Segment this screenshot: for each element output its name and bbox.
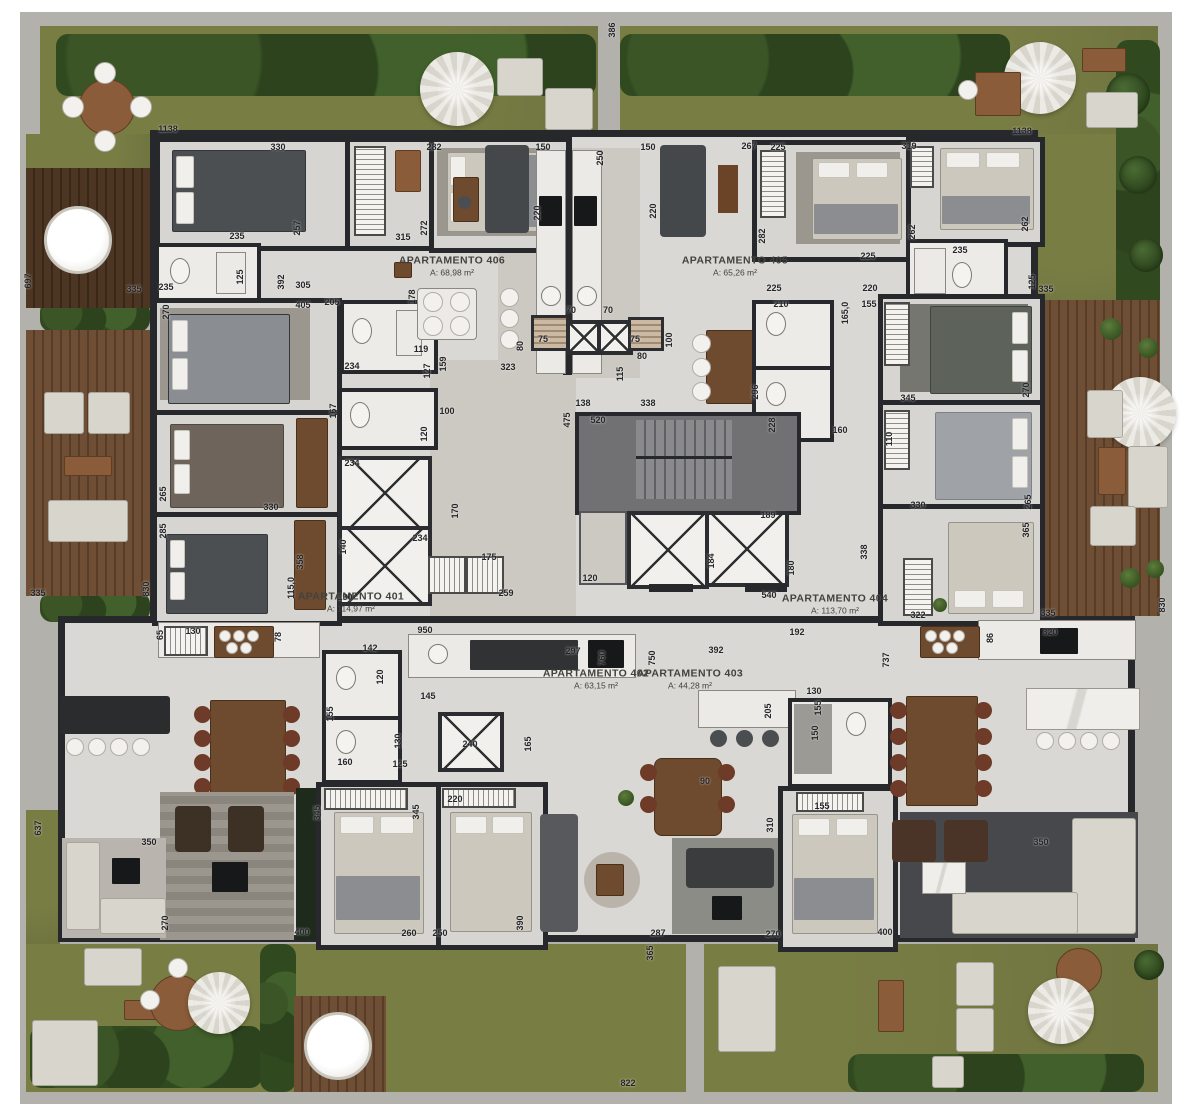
dimension-label: 282 <box>426 142 441 152</box>
dimension-label: 225 <box>860 251 875 261</box>
dimension-label: 175 <box>481 552 496 562</box>
dimension-label: 475 <box>562 412 572 427</box>
dimension-label: 345 <box>900 393 915 403</box>
dimension-label: 338 <box>859 544 869 559</box>
dimension-label: 365 <box>645 945 655 960</box>
dimension-label: 338 <box>640 398 655 408</box>
dimension-label: 1138 <box>1012 126 1032 136</box>
dimension-label: 165,0 <box>840 302 850 325</box>
dimension-label: 78 <box>273 632 283 642</box>
dimension-label: 110 <box>884 432 894 447</box>
dimension-label: 830 <box>1157 597 1167 612</box>
apartment-area: A: 113,70 m² <box>782 606 888 616</box>
dimension-label: 130 <box>806 686 821 696</box>
apartment-label: APARTAMENTO 405A: 65,26 m² <box>682 255 788 278</box>
dimension-label: 145 <box>420 691 435 701</box>
dimension-label: 240 <box>462 739 477 749</box>
dimension-label: 262 <box>1020 216 1030 231</box>
dimension-label: 189 <box>760 510 775 520</box>
apartment-name: APARTAMENTO 404 <box>782 593 888 605</box>
dimension-label: 270 <box>161 304 171 319</box>
dimension-label: 155 <box>325 706 335 721</box>
dimension-label: 350 <box>1033 837 1048 847</box>
dimension-label: 160 <box>337 757 352 767</box>
dimension-label: 65 <box>155 630 165 640</box>
dimension-label: 184 <box>706 553 716 568</box>
dimension-label: 262 <box>907 224 917 239</box>
dimension-label: 335 <box>1038 284 1053 294</box>
dimension-label: 285 <box>158 523 168 538</box>
apartment-area: A: 114,97 m² <box>298 604 404 614</box>
dimension-label: 125 <box>1027 274 1037 289</box>
dimension-label: 125 <box>392 759 407 769</box>
dimension-label: 120 <box>375 669 385 684</box>
apartment-area: A: 63,15 m² <box>543 681 649 691</box>
dimension-label: 358 <box>295 554 305 569</box>
dimension-label: 142 <box>362 643 377 653</box>
dimension-label: 170 <box>450 503 460 518</box>
dimension-label: 272 <box>419 220 429 235</box>
dimension-label: 822 <box>620 1078 635 1088</box>
dimension-label: 210 <box>773 299 788 309</box>
dimension-label: 225 <box>770 142 785 152</box>
dimension-label: 119 <box>414 344 429 354</box>
apartment-area: A: 44,28 m² <box>637 681 743 691</box>
dimension-label: 150 <box>810 725 820 740</box>
apartment-name: APARTAMENTO 402 <box>543 668 649 680</box>
dimension-label: 330 <box>910 500 925 510</box>
dimension-label: 520 <box>590 415 605 425</box>
dimension-label: 386 <box>607 22 617 37</box>
dimension-label: 234 <box>344 361 359 371</box>
dimension-label: 75 <box>630 334 640 344</box>
dimension-label: 178 <box>407 289 417 304</box>
dimension-label: 75 <box>538 334 548 344</box>
dimension-label: 125 <box>235 269 245 284</box>
dimension-label: 150 <box>640 142 655 152</box>
dimension-label: 159 <box>438 356 448 371</box>
dimension-label: 267 <box>741 141 756 151</box>
dimension-label: 1138 <box>158 124 178 134</box>
dimension-label: 130 <box>393 733 403 748</box>
apartment-name: APARTAMENTO 405 <box>682 255 788 267</box>
apartment-label: APARTAMENTO 403A: 44,28 m² <box>637 668 743 691</box>
apartment-label: APARTAMENTO 404A: 113,70 m² <box>782 593 888 616</box>
floor-plan: 1138330282150250150267225319113822022023… <box>0 0 1192 1117</box>
dimension-label: 330 <box>270 142 285 152</box>
dimension-label: 405 <box>295 300 310 310</box>
dimension-label: 257 <box>292 220 302 235</box>
dimension-label: 120 <box>582 573 597 583</box>
dimension-label: 192 <box>789 627 804 637</box>
dimension-label: 540 <box>761 590 776 600</box>
dimension-label: 830 <box>141 581 151 596</box>
apartment-label-layer: APARTAMENTO 406A: 68,98 m²APARTAMENTO 40… <box>0 0 1192 1117</box>
dimension-label: 205 <box>324 297 339 307</box>
dimension-label: 235 <box>229 231 244 241</box>
dimension-label: 155 <box>814 801 829 811</box>
dimension-label: 950 <box>417 625 432 635</box>
dimension-label: 167 <box>328 403 338 418</box>
dimension-label: 250 <box>432 928 447 938</box>
dimension-label: 330 <box>263 502 278 512</box>
dimension-label: 205 <box>763 703 773 718</box>
apartment-name: APARTAMENTO 406 <box>399 255 505 267</box>
dimension-label: 305 <box>295 280 310 290</box>
dimension-label: 220 <box>447 794 462 804</box>
dimension-label: 234 <box>412 533 427 543</box>
dimension-label: 335 <box>1040 608 1055 618</box>
dimension-label: 155 <box>813 700 823 715</box>
dimension-label: 335 <box>126 284 141 294</box>
dimension-label: 138 <box>575 398 590 408</box>
dimension-label: 335 <box>30 588 45 598</box>
dimension-label: 220 <box>532 205 542 220</box>
dimension-label: 392 <box>276 274 286 289</box>
dimension-label: 228 <box>767 417 777 432</box>
dimension-label: 400 <box>294 927 309 937</box>
dimension-label: 697 <box>23 273 33 288</box>
dimension-label: 270 <box>1021 382 1031 397</box>
apartment-label: APARTAMENTO 401A: 114,97 m² <box>298 591 404 614</box>
apartment-area: A: 65,26 m² <box>682 268 788 278</box>
dimension-label: 165 <box>523 736 533 751</box>
dimension-label: 155 <box>861 299 876 309</box>
dimension-label: 86 <box>985 633 995 643</box>
dimension-label: 220 <box>648 203 658 218</box>
dimension-label: 265 <box>1023 494 1033 509</box>
dimension-label: 100 <box>439 406 454 416</box>
dimension-label: 365 <box>1021 522 1031 537</box>
apartment-name: APARTAMENTO 401 <box>298 591 404 603</box>
dimension-label: 297 <box>565 646 580 656</box>
dimension-label: 115,0 <box>286 577 296 599</box>
dimension-label: 350 <box>141 837 156 847</box>
dimension-label: 120 <box>419 426 429 441</box>
dimension-label: 150 <box>535 142 550 152</box>
dimension-label: 270 <box>160 915 170 930</box>
apartment-name: APARTAMENTO 403 <box>637 668 743 680</box>
dimension-label: 760 <box>597 650 607 665</box>
dimension-label: 400 <box>877 927 892 937</box>
dimension-label: 100 <box>664 332 674 347</box>
dimension-label: 70 <box>566 305 576 315</box>
dimension-label: 319 <box>901 141 916 151</box>
dimension-label: 265 <box>158 486 168 501</box>
dimension-label: 235 <box>158 282 173 292</box>
dimension-label: 637 <box>33 820 43 835</box>
dimension-label: 259 <box>498 588 513 598</box>
dimension-label: 234 <box>344 458 359 468</box>
dimension-label: 315 <box>395 232 410 242</box>
dimension-label: 225 <box>766 283 781 293</box>
dimension-label: 235 <box>952 245 967 255</box>
dimension-label: 160 <box>832 425 847 435</box>
dimension-label: 390 <box>515 915 525 930</box>
dimension-label: 322 <box>910 610 925 620</box>
dimension-label: 320 <box>1042 627 1057 637</box>
dimension-label: 130 <box>185 626 200 636</box>
dimension-label: 282 <box>757 228 767 243</box>
apartment-label: APARTAMENTO 402A: 63,15 m² <box>543 668 649 691</box>
dimension-label: 80 <box>637 351 647 361</box>
dimension-label: 140 <box>338 539 348 554</box>
apartment-area: A: 68,98 m² <box>399 268 505 278</box>
dimension-label: 180 <box>786 560 796 575</box>
dimension-label: 115 <box>615 367 625 382</box>
dimension-label: 345 <box>312 805 322 820</box>
dimension-label: 737 <box>881 652 891 667</box>
dimension-label: 345 <box>411 804 421 819</box>
dimension-label: 90 <box>700 776 710 786</box>
dimension-label: 296 <box>750 384 760 399</box>
dimension-label: 80 <box>515 341 525 351</box>
dimension-label: 310 <box>765 817 775 832</box>
apartment-label: APARTAMENTO 406A: 68,98 m² <box>399 255 505 278</box>
dimension-label: 250 <box>595 150 605 165</box>
dimension-label: 750 <box>647 650 657 665</box>
dimension-label: 392 <box>708 645 723 655</box>
dimension-label: 287 <box>650 928 665 938</box>
dimension-label: 260 <box>401 928 416 938</box>
dimension-label: 270 <box>765 929 780 939</box>
dimension-label: 220 <box>862 283 877 293</box>
dimension-label: 70 <box>603 305 613 315</box>
dimension-label: 127 <box>422 363 432 378</box>
dimension-label: 323 <box>500 362 515 372</box>
